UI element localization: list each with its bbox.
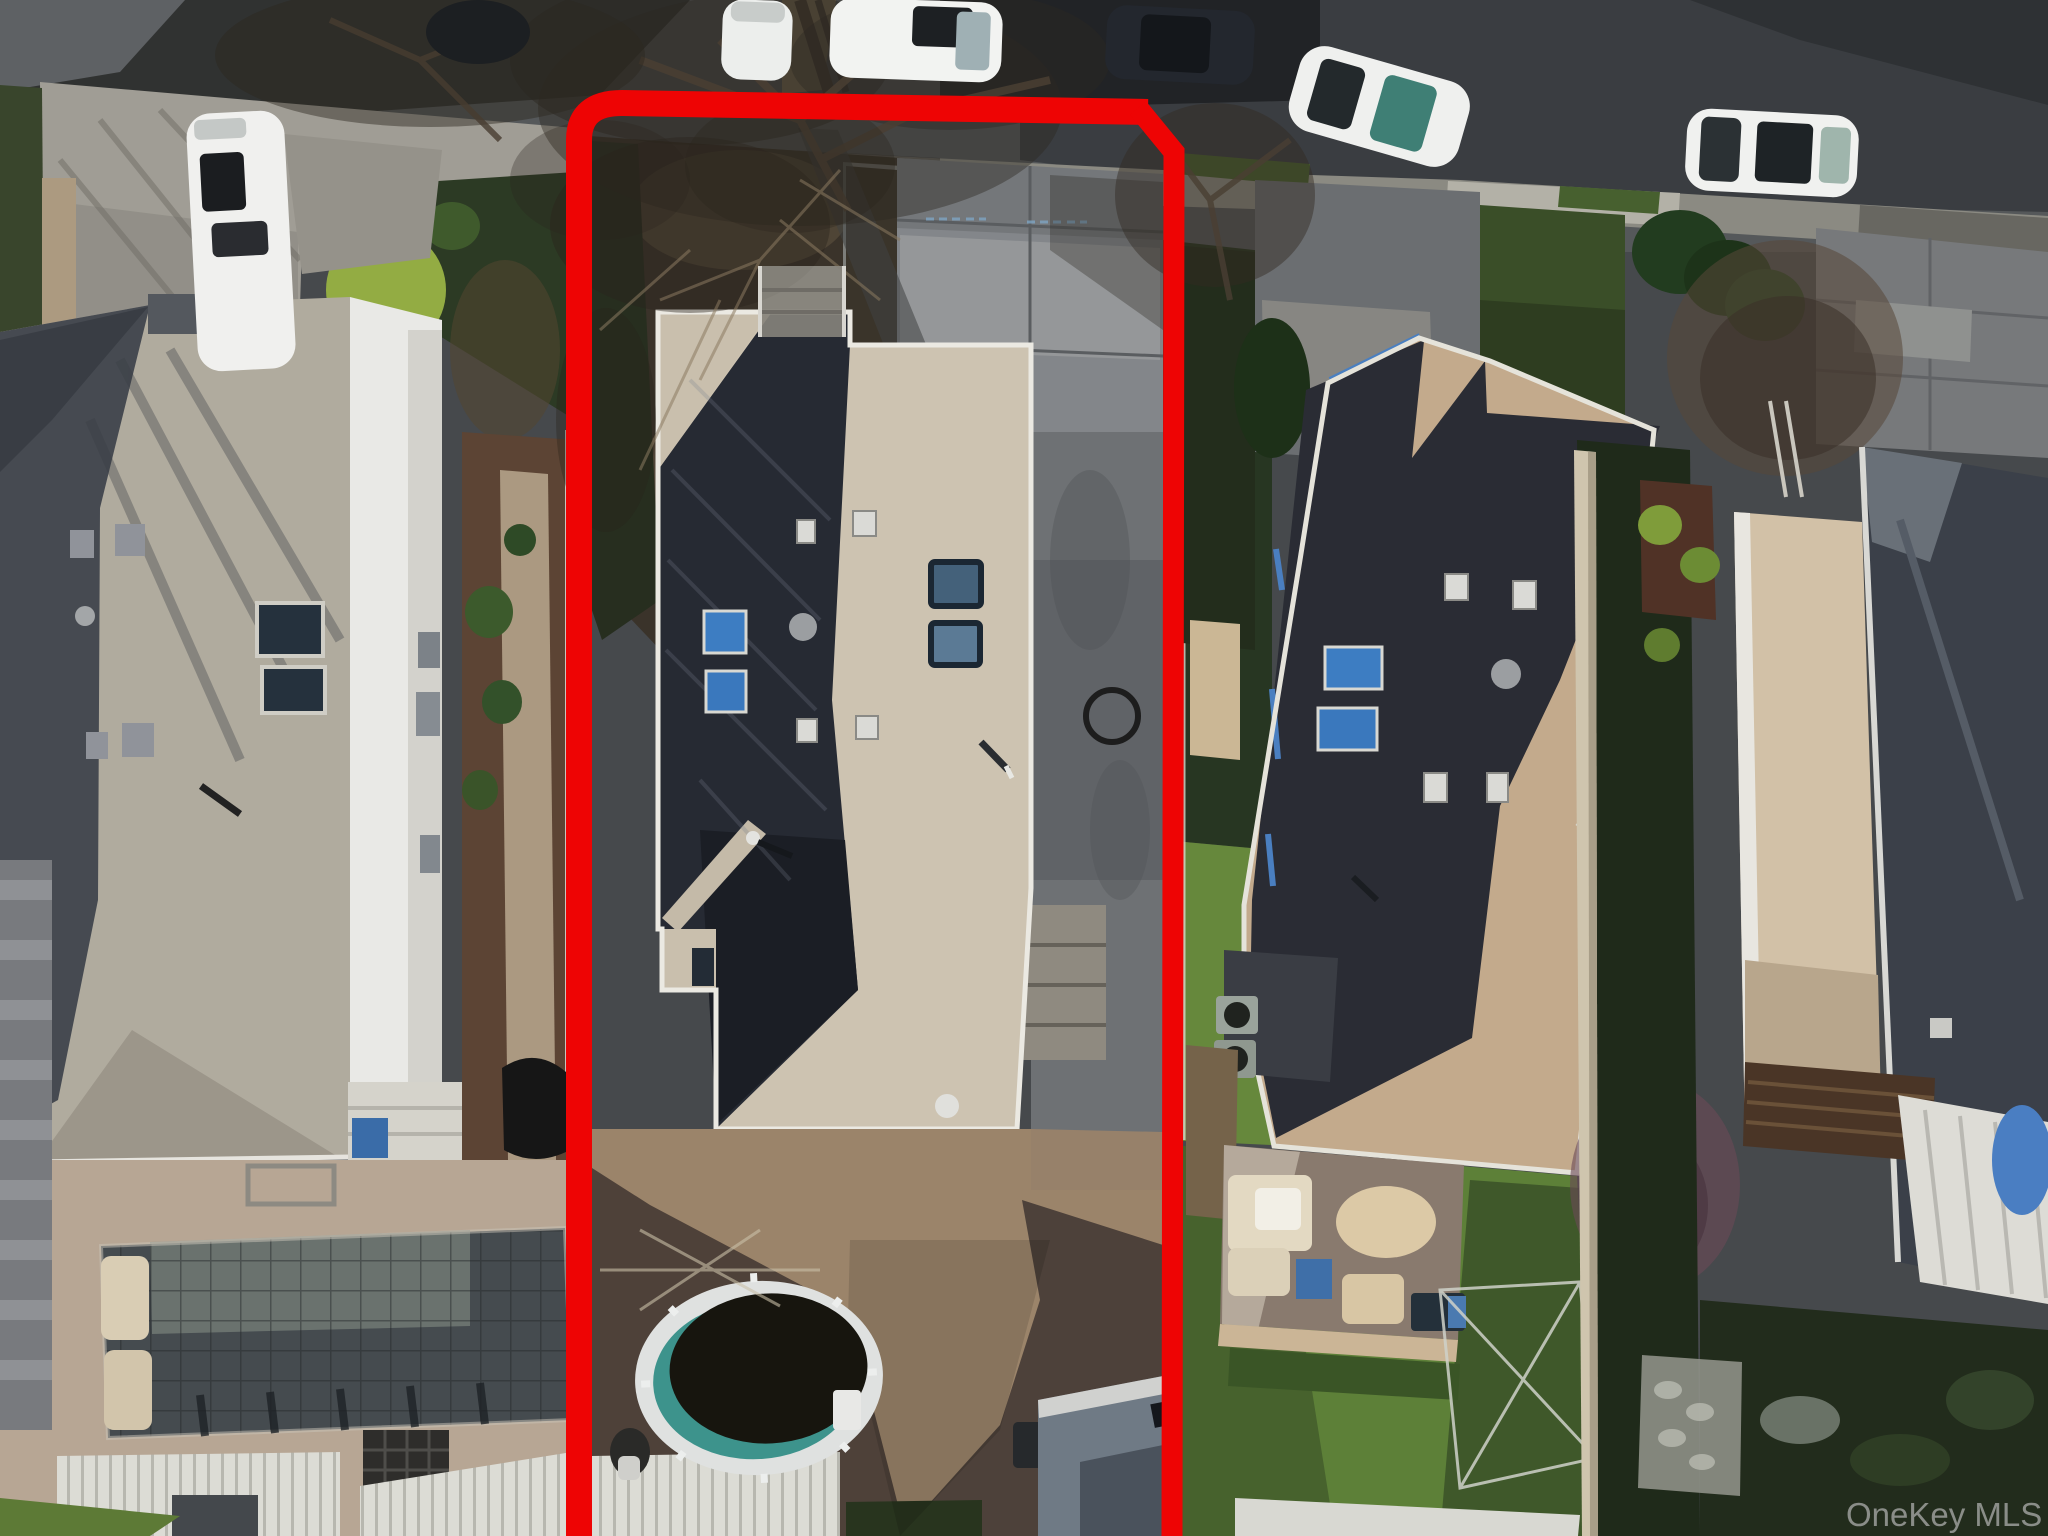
svg-text:OneKey MLS: OneKey MLS [1846, 1496, 2042, 1533]
